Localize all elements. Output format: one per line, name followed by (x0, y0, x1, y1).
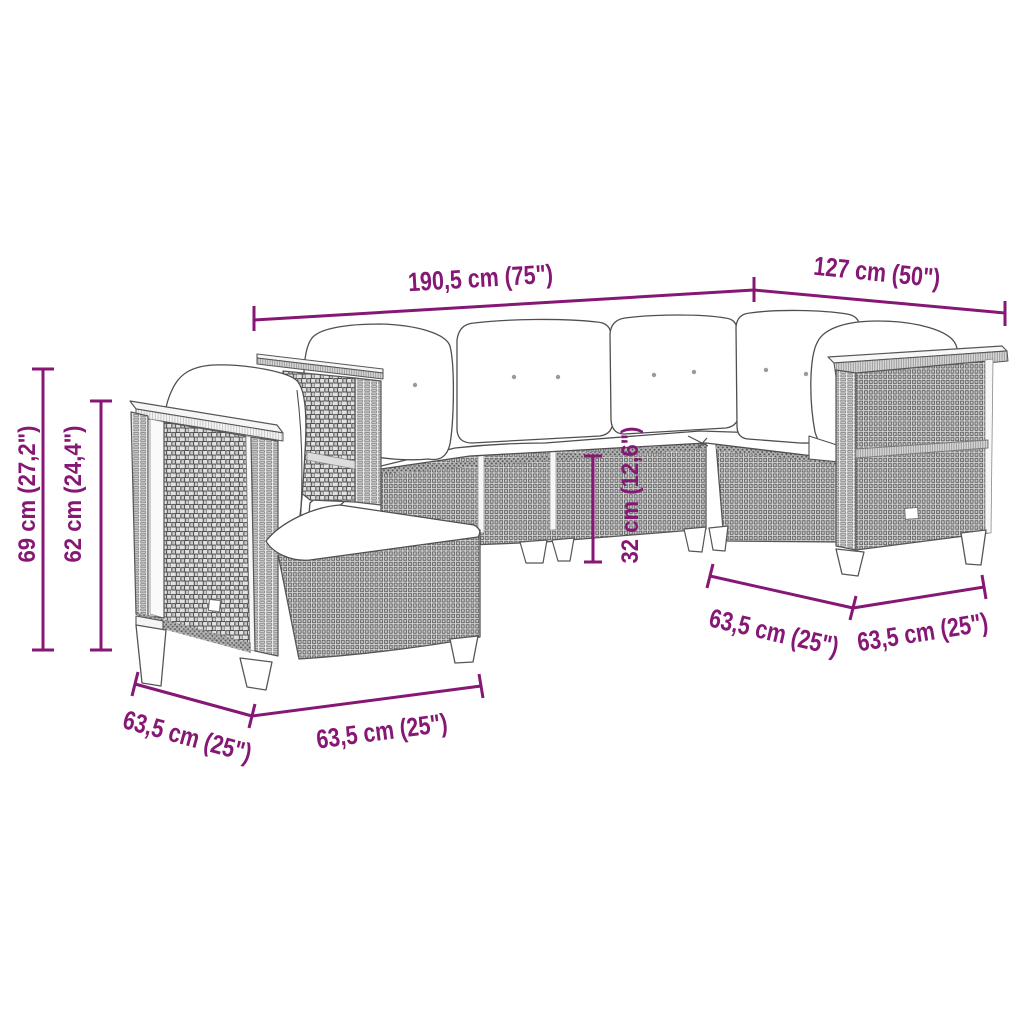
svg-text:32 cm (12,6"): 32 cm (12,6") (617, 427, 644, 564)
svg-text:69 cm (27,2"): 69 cm (27,2") (14, 426, 41, 563)
svg-text:62 cm (24,4"): 62 cm (24,4") (60, 426, 87, 563)
